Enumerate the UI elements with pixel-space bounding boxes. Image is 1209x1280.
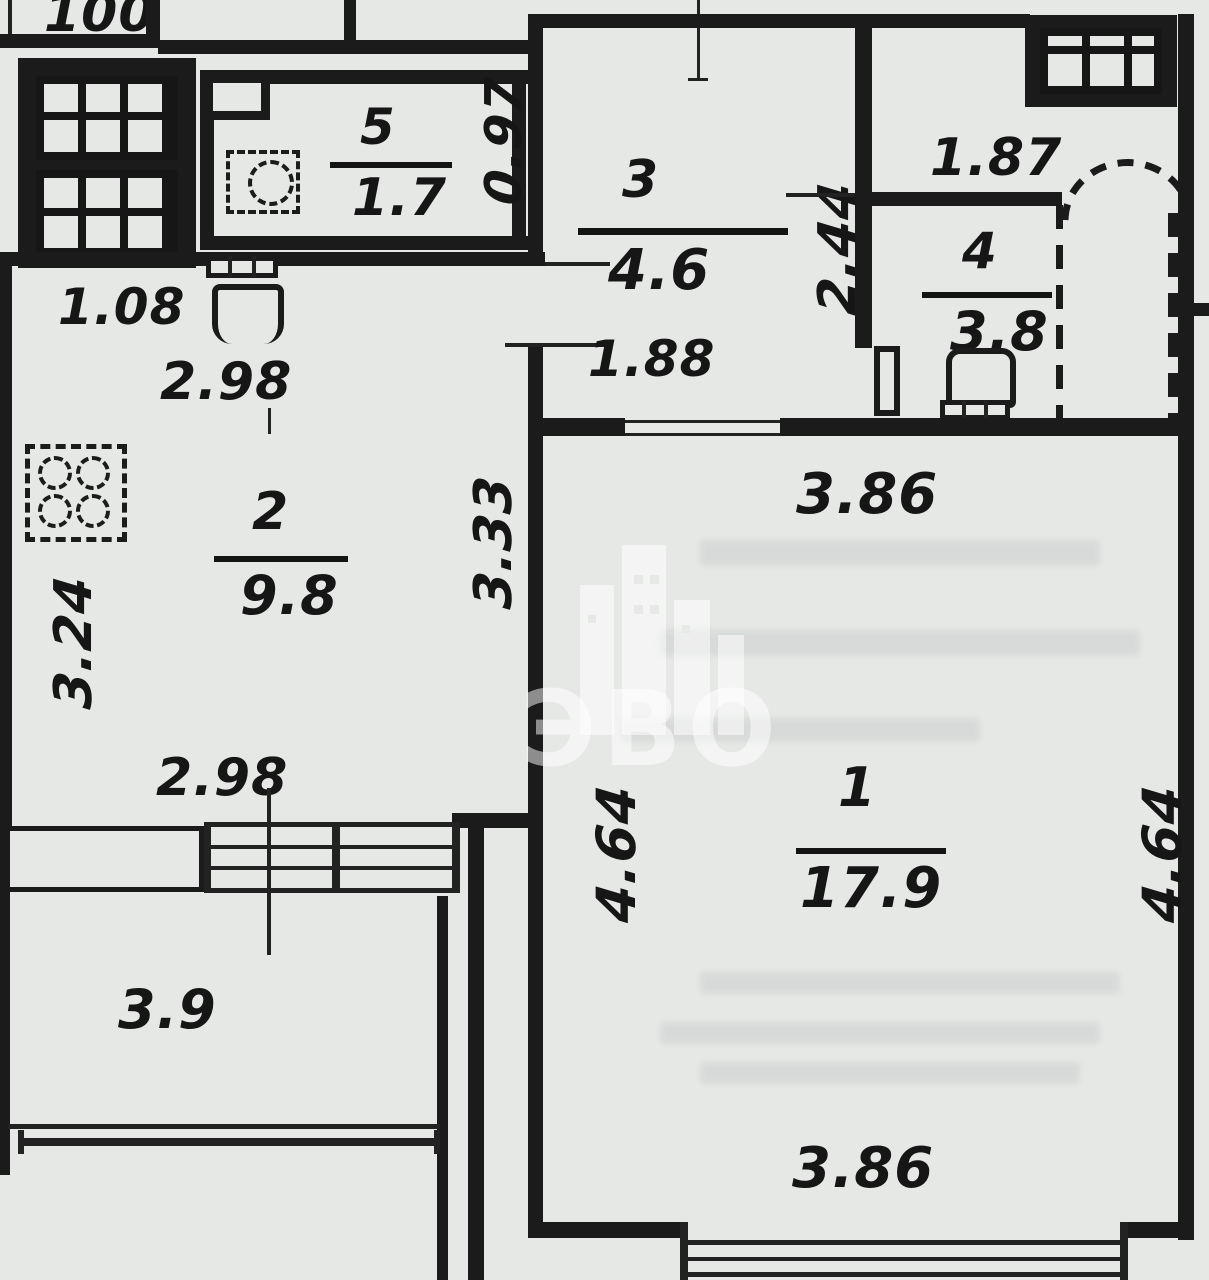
wall-top [540,14,1030,28]
room3-number: 3 [622,150,659,210]
room2-number: 2 [252,482,289,542]
wall-stub [1185,303,1209,316]
scan-artifact [700,1062,1080,1084]
dashed-partition-line [1056,205,1063,425]
wall-outer-corner [468,813,484,1280]
wall-room1-top-left [540,418,625,436]
wall [344,0,356,42]
door-leaf [874,346,900,416]
window-jamb [332,822,340,893]
scan-artifact [660,1022,1100,1044]
toilet-tank-divider [984,400,988,420]
stove-burner-icon [76,456,110,490]
wall [158,40,532,54]
door-swing-arc-icon [1040,138,1209,238]
dimension-464-right: 4.64 [1131,782,1194,926]
window-jamb [452,822,460,893]
room5-number: 5 [360,98,396,156]
dimension-333: 3.33 [464,473,524,612]
room4-number: 4 [962,222,998,280]
dimension-188: 1.88 [588,330,715,388]
balcony-rail-end [434,1130,440,1154]
balcony-edge-line [8,1124,440,1129]
room1-area: 17.9 [800,856,942,921]
toilet-tank-icon [940,400,1010,420]
vent-grid-icon [36,76,178,160]
wall-left-inner [528,346,543,1238]
dimension-097: 0.97 [475,74,533,207]
room1-number: 1 [838,756,877,819]
room1-fraction-line [796,848,946,854]
toilet-bowl-icon [212,284,284,344]
doorway-threshold-line [625,433,780,436]
dimension-extension-line [268,408,271,434]
dimension-extension-line [697,0,700,80]
toilet-tank-divider [962,400,966,420]
room5-area: 1.7 [352,168,447,228]
room3-fraction-line [578,228,788,235]
stove-icon [25,444,127,542]
cistern-icon [206,256,278,278]
room4-fraction-line [922,292,1052,298]
vent-grid-icon [36,170,178,256]
dashed-wall-line [1168,213,1179,425]
toilet-bowl-icon [946,348,1016,408]
wall-niche [204,74,270,120]
balcony-area: 3.9 [118,978,217,1041]
wall-room1-bottom-left [528,1222,686,1238]
stove-burner-icon [38,494,72,528]
window-line [683,1240,1128,1245]
sink-bowl-icon [248,160,294,206]
wall-left-outer [0,252,12,826]
window-jamb [680,1222,688,1280]
window-jamb [1120,1222,1128,1280]
dimension-298-top: 2.98 [160,352,292,412]
vent-grid-icon [1040,28,1162,94]
dimension-464-left: 4.64 [585,782,648,926]
room3-area: 4.6 [608,238,710,303]
wall-balcony-right [437,896,448,1280]
balcony-rail-line [20,1138,438,1146]
floor-plan: 100 5 1.7 0.97 3 4.6 1.88 2.44 1.87 4 3.… [0,0,1209,1280]
scan-artifact [700,540,1100,566]
window-line [683,1272,1128,1277]
wall-room5-bottom [200,236,532,250]
wall [452,813,543,828]
room2-fraction-line [214,556,348,562]
wall-balcony-left [0,826,10,1175]
wall-room1-bottom-right [1124,1222,1194,1238]
wall-room1-top-right [780,418,1190,436]
room2-area: 9.8 [240,564,339,627]
cistern-divider [252,256,256,278]
dimension-tick [786,193,856,197]
stove-burner-icon [38,456,72,490]
balcony-door-icon [4,826,204,892]
wall [0,34,150,48]
stove-burner-icon [76,494,110,528]
window-line [683,1257,1128,1261]
window-jamb [204,822,211,893]
dimension-324: 3.24 [44,573,104,712]
balcony-rail-end [18,1130,24,1154]
watermark-text: ЭВО [520,668,782,790]
dimension-tick [688,78,708,81]
dimension-386-top: 3.86 [796,462,938,527]
cistern-divider [228,256,232,278]
wall-bath-top [860,192,1062,206]
dimension-108: 1.08 [58,278,185,336]
wall-bath-left [855,14,872,348]
dimension-386-bottom: 3.86 [792,1136,934,1201]
scan-artifact [700,972,1120,994]
dimension-extension-line [267,788,271,955]
doorway-threshold-line [625,420,780,423]
